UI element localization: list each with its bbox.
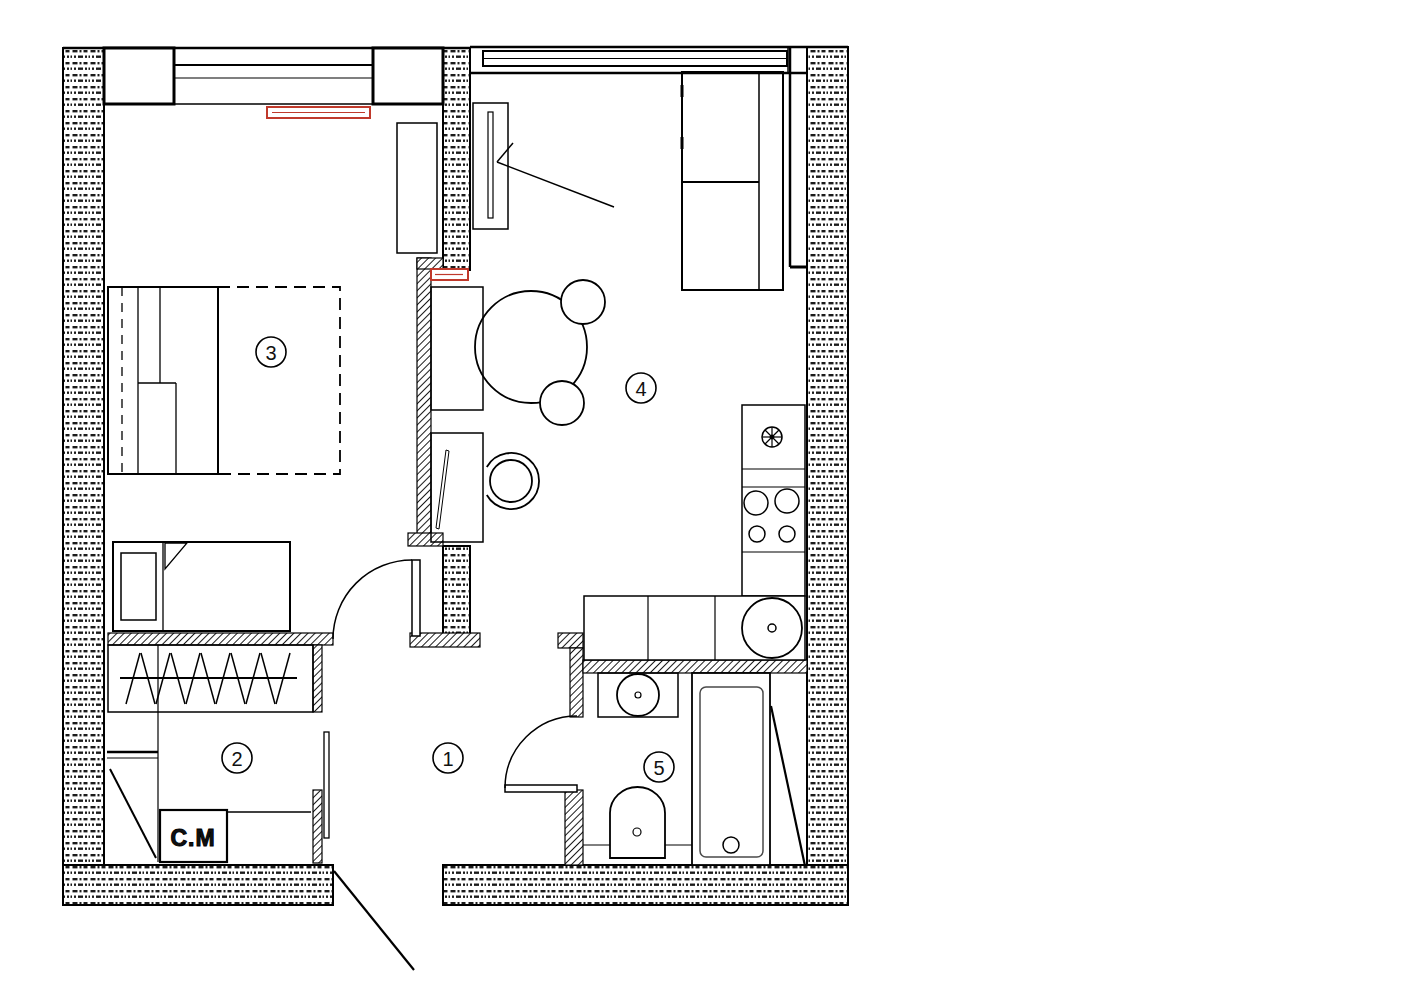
dining-chair-bottom (540, 381, 584, 425)
room-label-5: 5 (644, 752, 674, 782)
floor-plan-page: C.M 1 2 3 4 5 (0, 0, 1414, 1000)
bath-west-stub-lower (565, 790, 583, 865)
kitchen-counter-bottom (584, 596, 805, 660)
bedroom-door (333, 560, 420, 639)
duct-diagonal (771, 706, 805, 866)
wardrobe (108, 645, 313, 712)
living-room-furniture (431, 72, 783, 542)
room-number-3: 3 (265, 342, 276, 364)
bath-north-wall (583, 660, 807, 673)
room-label-2: 2 (222, 743, 252, 773)
bedroom-furniture (108, 107, 468, 631)
extractor-fan-icon (762, 427, 782, 447)
room-label-3: 3 (256, 337, 286, 367)
room-number-4: 4 (635, 378, 646, 400)
laptop (436, 450, 449, 529)
single-bed (113, 542, 290, 631)
closet-east-stub (313, 645, 322, 712)
closet-east-stub-lower (313, 790, 322, 863)
brick-column-mid (443, 546, 470, 636)
closet-room: C.M (107, 645, 313, 862)
ironing-board (110, 769, 156, 858)
wall-bottom-right (443, 865, 848, 905)
bed-fold-out-dashed (218, 287, 340, 474)
room-label-1: 1 (433, 743, 463, 773)
washbasin (598, 673, 678, 717)
kitchen-stub-cap (558, 633, 583, 648)
radiator-bedroom (267, 107, 370, 118)
wall-bottom-left (63, 865, 333, 905)
living-room-window (470, 47, 848, 73)
dining-chair-top (561, 280, 605, 324)
bath-west-stub-upper (570, 648, 583, 717)
kitchen (584, 405, 805, 660)
bathroom (583, 673, 805, 866)
window-pier-right (373, 48, 443, 104)
partition-top-cap (417, 258, 443, 269)
sofa (682, 72, 783, 290)
bedroom-bottom-wall (108, 633, 333, 645)
tall-wardrobe (397, 123, 437, 253)
room-label-4: 4 (626, 373, 656, 403)
wall-right (807, 47, 848, 905)
washing-machine: C.M (160, 810, 227, 862)
wall-left (63, 48, 104, 905)
blanket-fold (165, 543, 187, 569)
closet-door-leaf (324, 732, 329, 838)
bathtub (692, 673, 770, 865)
balcony-pillar-line (790, 47, 807, 267)
room-number-5: 5 (653, 757, 664, 779)
desk (431, 433, 483, 542)
partition-bedroom-living (417, 258, 431, 545)
floor-plan: C.M 1 2 3 4 5 (0, 0, 1414, 1000)
bathroom-door (505, 716, 577, 792)
entrance-door-leaf (334, 871, 414, 970)
tv-panel (473, 103, 614, 229)
brick-column-top (443, 48, 470, 270)
desk-chair (487, 453, 539, 509)
bedroom-window (174, 65, 373, 104)
sofa-bed (108, 287, 340, 474)
window-pier-left (104, 48, 174, 104)
partition-bottom-cap (408, 533, 443, 546)
room-number-2: 2 (231, 748, 242, 770)
room-number-1: 1 (442, 748, 453, 770)
toilet (610, 787, 665, 858)
radiator-partition (431, 269, 468, 280)
kitchen-counter-vertical (742, 405, 805, 596)
shelf (107, 752, 158, 758)
washing-machine-label: C.M (170, 825, 215, 851)
